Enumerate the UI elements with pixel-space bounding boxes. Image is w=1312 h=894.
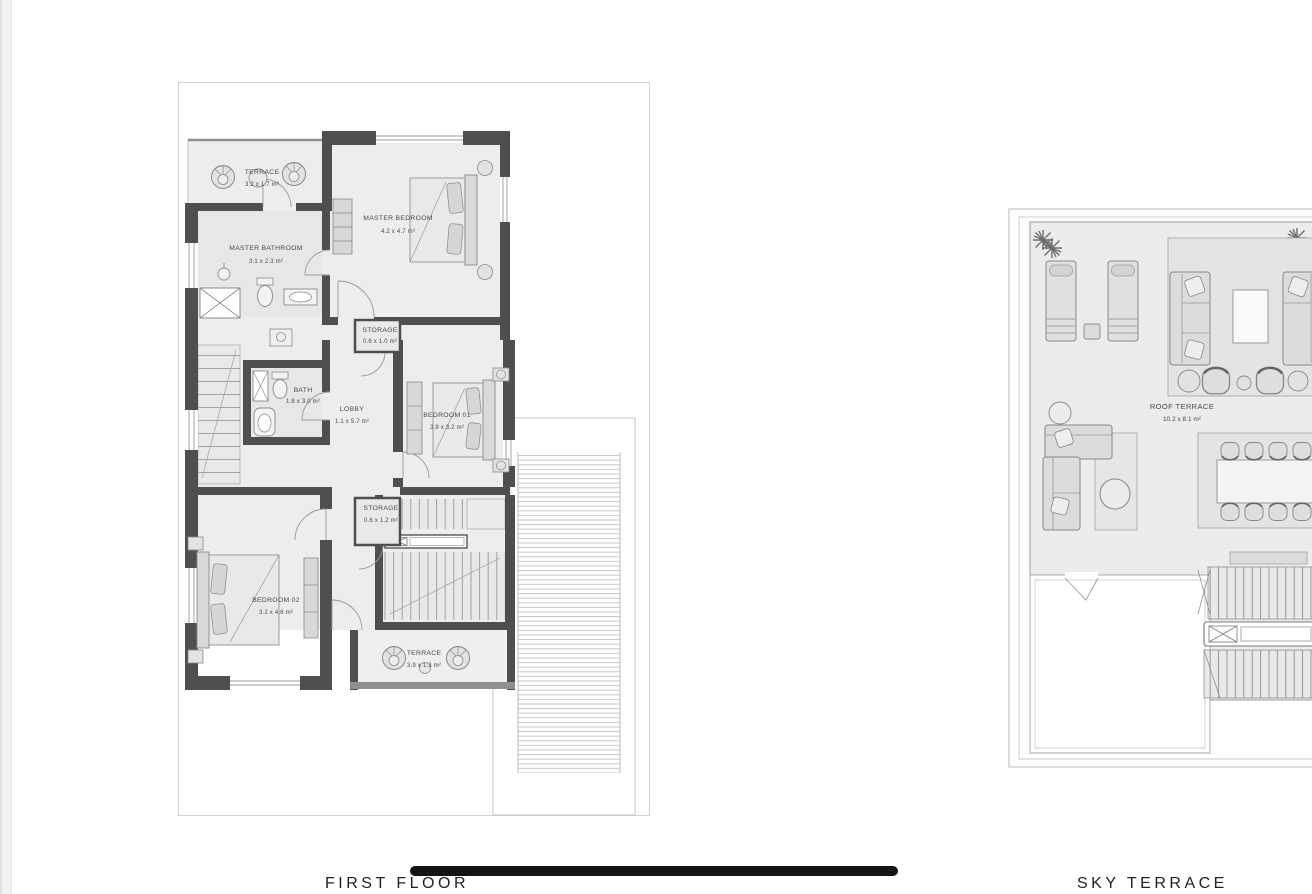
label-master-bedroom-name: MASTER BEDROOM xyxy=(363,215,433,222)
sky-terrace-plan: ROOF TERRACE 10.2 x 8.1 m² xyxy=(1008,208,1312,773)
first-floor-plan: TERRACE 3.2 x 1.7 m² MASTER BEDROOM 4.2 … xyxy=(178,82,658,822)
dining-chair xyxy=(1221,503,1239,520)
dining-chair xyxy=(1221,443,1239,460)
label-terrace-top-dims: 3.2 x 1.7 m² xyxy=(245,182,279,188)
bench xyxy=(1230,552,1307,564)
dining-chair xyxy=(1245,443,1263,460)
sky-terrace-caption: SKY TERRACE xyxy=(1077,875,1228,893)
terrace-bottom-floor xyxy=(350,630,515,686)
floorplan-page: TERRACE 3.2 x 1.7 m² MASTER BEDROOM 4.2 … xyxy=(0,0,1312,894)
dining-chair xyxy=(1293,443,1311,460)
dining-table xyxy=(1217,460,1312,503)
label-storage-lower-name: STORAGE xyxy=(363,505,398,512)
label-master-bathroom-name: MASTER BATHROOM xyxy=(229,245,303,252)
dining-set xyxy=(1198,433,1312,528)
coffee-table xyxy=(1233,290,1268,343)
side-table xyxy=(1084,324,1100,339)
label-terrace-bottom-dims: 3.9 x 1.3 m² xyxy=(407,663,441,669)
page-edge-strip xyxy=(0,0,12,894)
armchair xyxy=(1257,368,1284,394)
armchair xyxy=(1203,368,1230,394)
label-master-bathroom-dims: 3.1 x 2.3 m² xyxy=(249,259,283,265)
small-pouf xyxy=(1237,376,1251,390)
lounge-set xyxy=(1168,238,1312,396)
label-roof-terrace-dims: 10.2 x 8.1 m² xyxy=(1163,416,1202,423)
utility-unit xyxy=(270,329,292,346)
first-floor-caption: FIRST FLOOR xyxy=(325,875,469,893)
label-bath-dims: 1.8 x 3.0 m² xyxy=(286,399,320,405)
bedroom01-wardrobe xyxy=(407,382,422,454)
pergola-deck-hatch xyxy=(518,452,620,773)
dining-chair xyxy=(1293,503,1311,520)
bedroom02-dresser xyxy=(304,558,318,638)
pouf xyxy=(1288,371,1308,391)
sky-stairs xyxy=(1198,567,1312,698)
dining-chair xyxy=(1269,443,1287,460)
label-storage-upper-name: STORAGE xyxy=(362,327,397,334)
lower-roof-cutout xyxy=(1030,572,1210,753)
label-storage-lower-dims: 0.6 x 1.2 m² xyxy=(364,518,398,524)
label-master-bedroom-dims: 4.2 x 4.7 m² xyxy=(381,229,415,235)
master-wardrobe xyxy=(333,199,352,254)
label-storage-upper-dims: 0.6 x 1.0 m² xyxy=(363,339,397,345)
label-lobby-name: LOBBY xyxy=(340,406,364,413)
label-bedroom02-dims: 3.2 x 4.6 m² xyxy=(259,610,293,616)
pouf xyxy=(1178,370,1200,392)
label-bedroom01-name: BEDROOM 01 xyxy=(423,412,471,419)
label-roof-terrace-name: ROOF TERRACE xyxy=(1150,402,1214,411)
dining-chair xyxy=(1269,503,1287,520)
label-lobby-dims: 1.1 x 5.7 m² xyxy=(335,419,369,425)
label-bedroom02-name: BEDROOM 02 xyxy=(252,597,300,604)
footer-divider-bar xyxy=(410,866,898,876)
door-opening xyxy=(1065,572,1098,578)
label-bedroom01-dims: 3.9 x 3.2 m² xyxy=(430,425,464,431)
stair-landing xyxy=(1204,622,1312,646)
stairs-main xyxy=(383,499,505,620)
label-terrace-bottom-name: TERRACE xyxy=(407,650,442,657)
dining-chair xyxy=(1245,503,1263,520)
label-terrace-top-name: TERRACE xyxy=(245,169,280,176)
label-bath-name: BATH xyxy=(294,387,313,394)
pouf xyxy=(1049,402,1071,424)
round-coffee-table xyxy=(1100,479,1130,509)
storage-upper-room xyxy=(355,320,400,352)
stairs-left xyxy=(198,345,240,484)
palm-icon xyxy=(1042,238,1062,258)
